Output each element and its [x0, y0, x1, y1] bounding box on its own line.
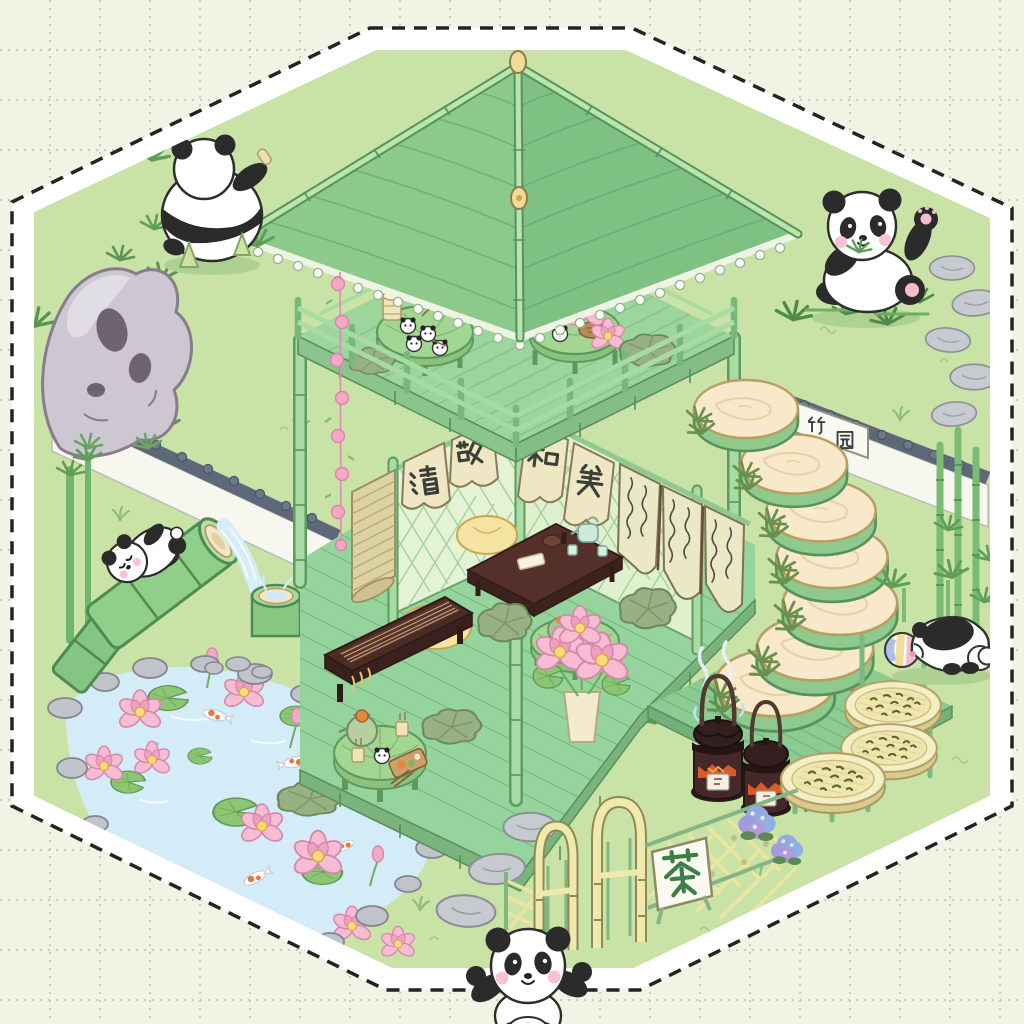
panda-bun [374, 747, 389, 763]
panda-bun [420, 325, 435, 341]
panda-bun [400, 317, 415, 333]
panda-tea-garden-scene: 竹 园 [0, 0, 1024, 1024]
panda-bun [406, 335, 421, 351]
bamboo-blind[interactable] [349, 470, 396, 607]
